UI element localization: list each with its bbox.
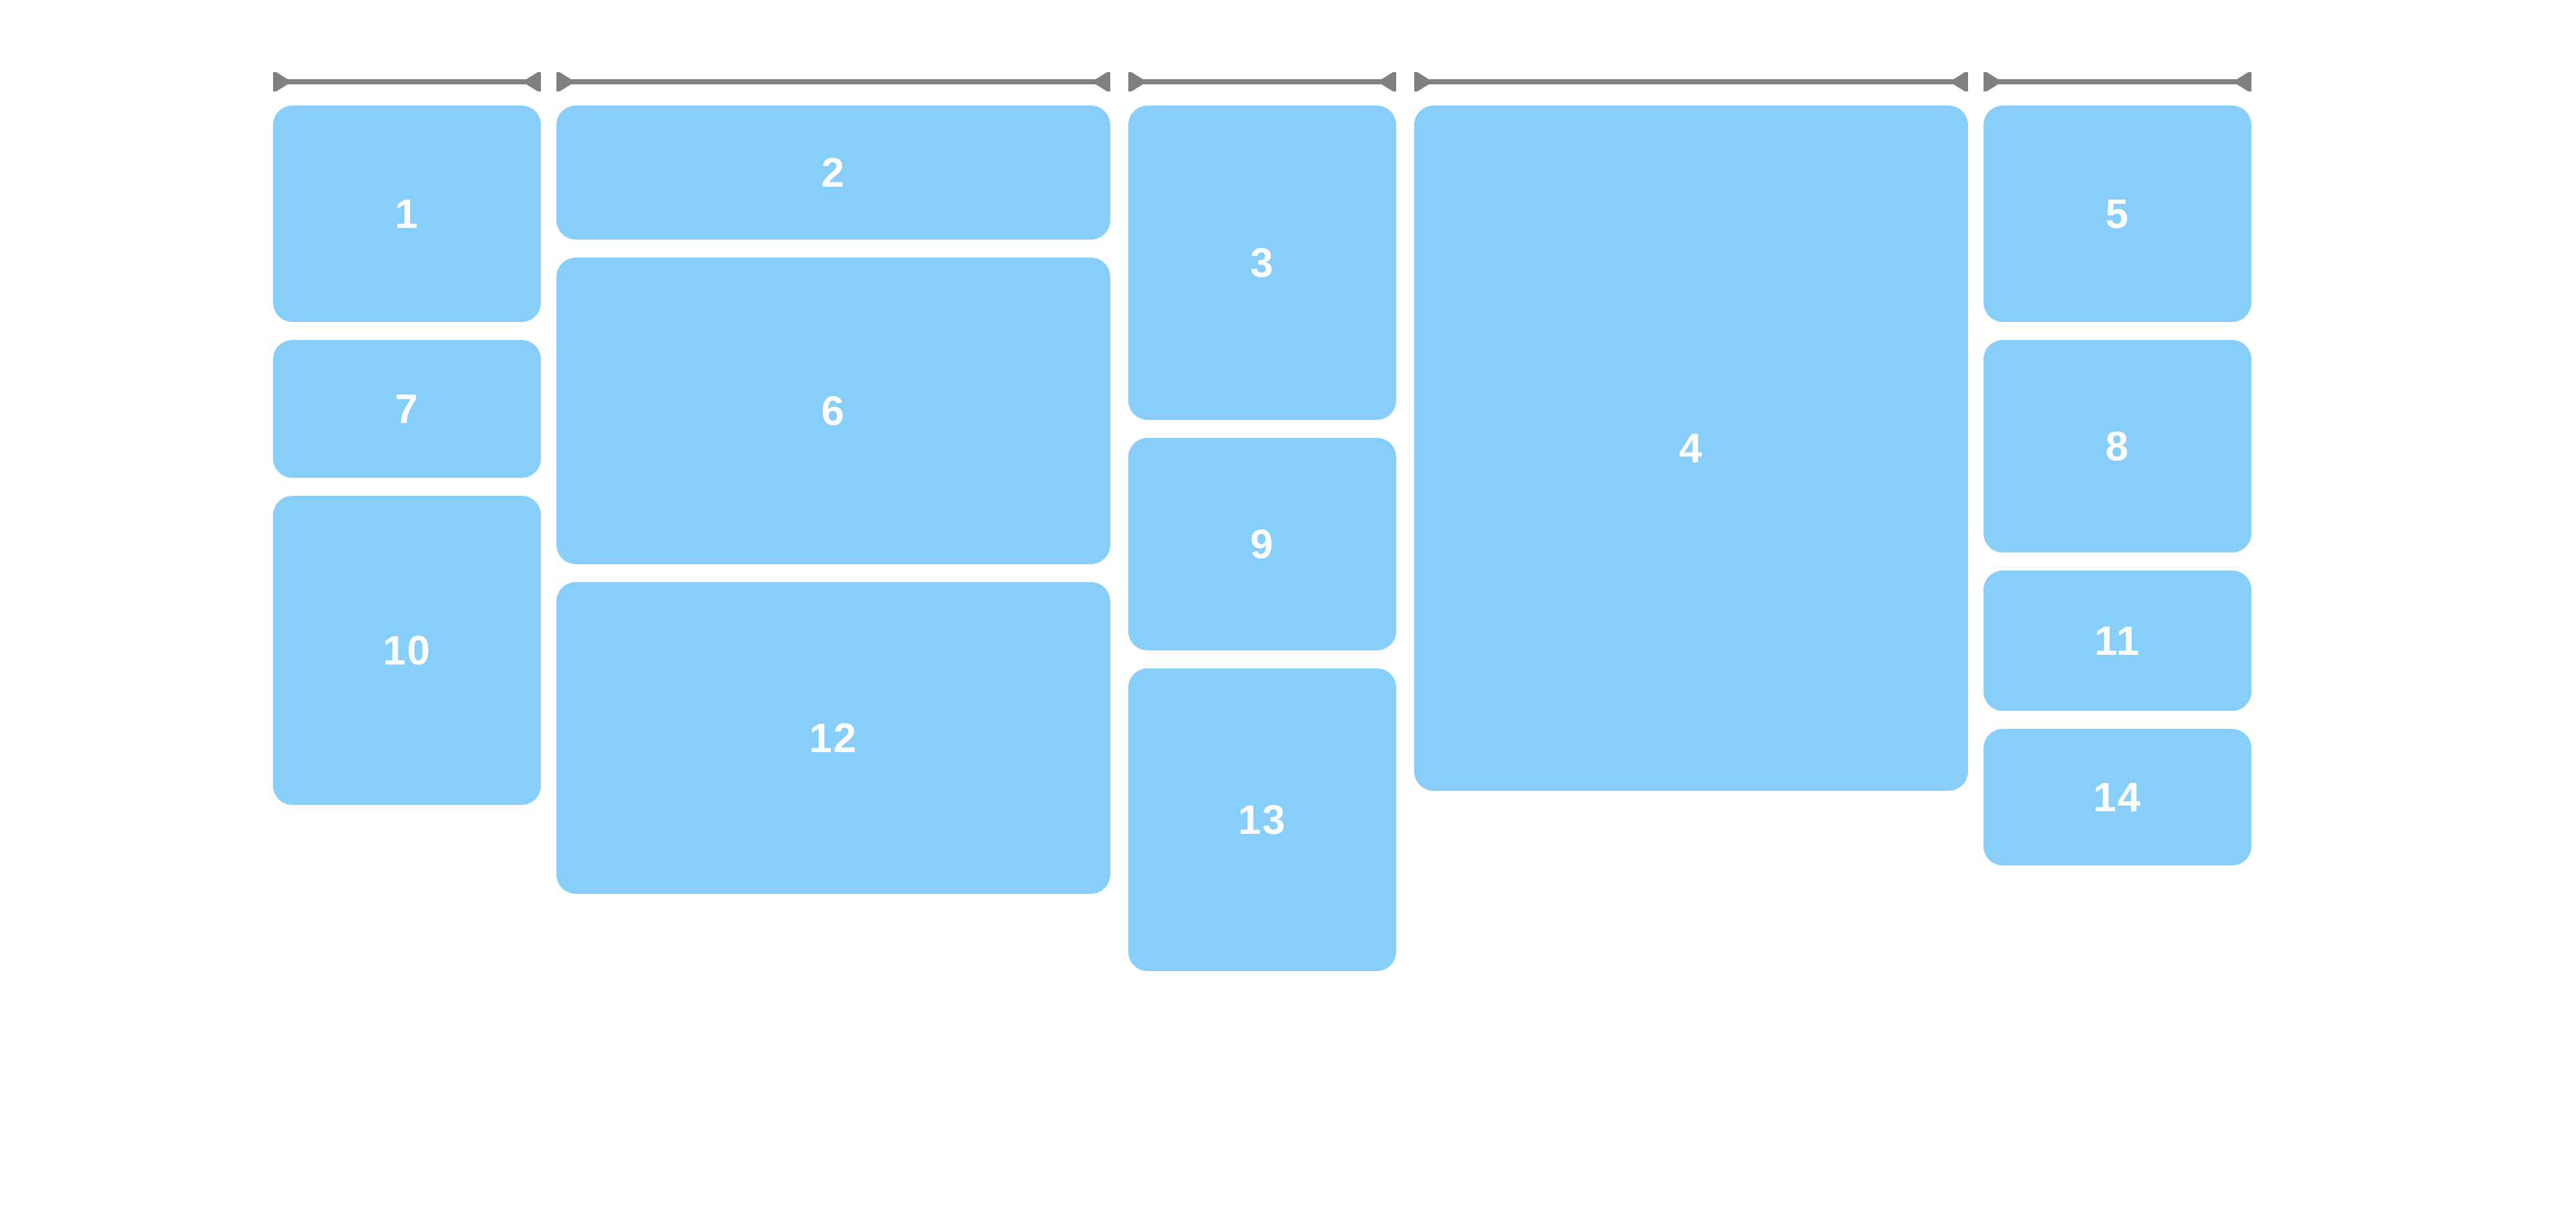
masonry-tile-3: 3 xyxy=(1128,106,1396,420)
masonry-tile-4: 4 xyxy=(1414,106,1968,791)
tile-label: 9 xyxy=(1250,524,1274,565)
masonry-tile-12: 12 xyxy=(556,582,1110,894)
masonry-tile-2: 2 xyxy=(556,106,1110,240)
masonry-tile-1: 1 xyxy=(273,106,541,322)
masonry-tile-8: 8 xyxy=(1984,340,2251,552)
masonry-tile-6: 6 xyxy=(556,258,1110,564)
masonry-layout-page: 1 7 10 2 6 12 3 9 13 4 xyxy=(0,0,2576,1208)
ruler-right-arrowhead-icon xyxy=(1378,72,1393,91)
ruler-left-arrowhead-icon xyxy=(560,72,575,91)
ruler-right-tick xyxy=(1393,72,1396,91)
ruler-right-tick xyxy=(538,72,541,91)
ruler-right-tick xyxy=(1107,72,1110,91)
ruler-left-arrowhead-icon xyxy=(276,72,292,91)
ruler-line xyxy=(1985,79,2250,84)
column-width-ruler-2 xyxy=(556,72,1110,91)
ruler-right-tick xyxy=(2248,72,2251,91)
tile-label: 10 xyxy=(383,630,431,671)
ruler-right-arrowhead-icon xyxy=(2233,72,2248,91)
ruler-right-arrowhead-icon xyxy=(1092,72,1107,91)
masonry-tile-9: 9 xyxy=(1128,438,1396,650)
masonry-tile-7: 7 xyxy=(273,340,541,478)
ruler-left-arrowhead-icon xyxy=(1987,72,2002,91)
tile-label: 6 xyxy=(821,390,846,431)
tile-label: 13 xyxy=(1238,799,1286,840)
tile-label: 1 xyxy=(395,193,419,234)
ruler-right-arrowhead-icon xyxy=(522,72,538,91)
masonry-tile-11: 11 xyxy=(1984,571,2251,711)
tile-label: 14 xyxy=(2093,777,2141,818)
ruler-line xyxy=(274,79,540,84)
ruler-line xyxy=(1416,79,1967,84)
column-width-ruler-5 xyxy=(1984,72,2251,91)
tile-label: 12 xyxy=(809,717,857,759)
tile-label: 7 xyxy=(395,388,419,429)
tile-label: 4 xyxy=(1679,428,1703,469)
ruler-right-arrowhead-icon xyxy=(1949,72,1965,91)
column-width-ruler-3 xyxy=(1128,72,1396,91)
tile-label: 3 xyxy=(1250,242,1274,283)
ruler-line xyxy=(1130,79,1395,84)
tile-label: 11 xyxy=(2094,620,2141,661)
tile-label: 2 xyxy=(821,152,846,193)
masonry-tile-5: 5 xyxy=(1984,106,2251,322)
tile-label: 8 xyxy=(2105,426,2130,467)
column-width-ruler-4 xyxy=(1414,72,1968,91)
tile-label: 5 xyxy=(2105,193,2130,234)
ruler-right-tick xyxy=(1965,72,1968,91)
masonry-tile-13: 13 xyxy=(1128,668,1396,971)
ruler-left-arrowhead-icon xyxy=(1417,72,1433,91)
masonry-tile-14: 14 xyxy=(1984,729,2251,865)
column-width-ruler-1 xyxy=(273,72,541,91)
masonry-tile-10: 10 xyxy=(273,496,541,805)
ruler-line xyxy=(558,79,1109,84)
ruler-left-arrowhead-icon xyxy=(1132,72,1147,91)
